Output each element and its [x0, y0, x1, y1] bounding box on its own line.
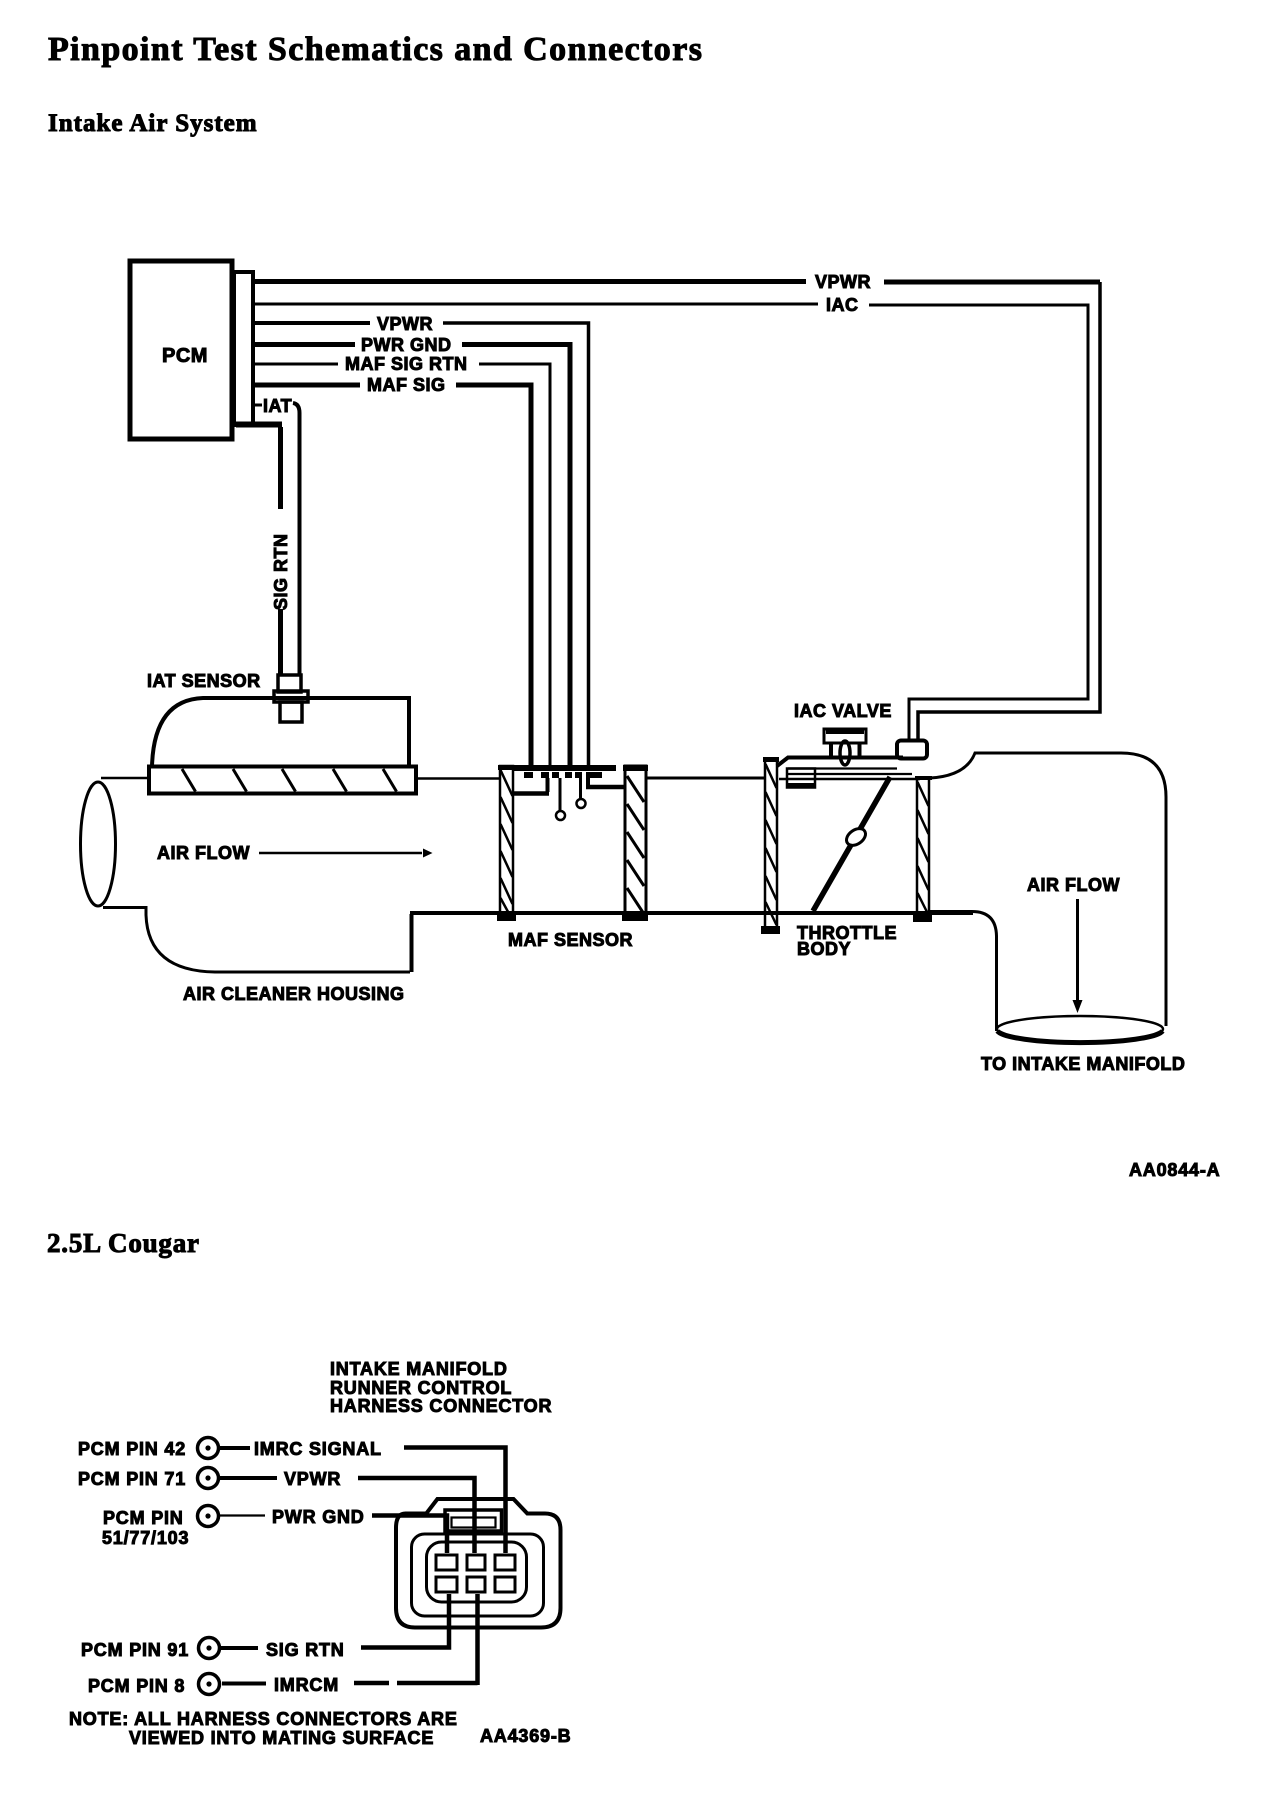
svg-text:VPWR: VPWR [284, 1469, 341, 1489]
svg-text:MAF SIG RTN: MAF SIG RTN [345, 354, 468, 374]
svg-text:TO INTAKE MANIFOLD: TO INTAKE MANIFOLD [981, 1054, 1185, 1074]
svg-text:Intake Air System: Intake Air System [48, 110, 258, 137]
svg-text:AIR CLEANER HOUSING: AIR CLEANER HOUSING [183, 984, 405, 1004]
svg-text:PCM PIN: PCM PIN [103, 1508, 184, 1528]
svg-text:SIG RTN: SIG RTN [266, 1640, 345, 1660]
svg-text:IAT SENSOR: IAT SENSOR [147, 671, 261, 691]
svg-text:INTAKE MANIFOLD: INTAKE MANIFOLD [330, 1359, 508, 1379]
svg-text:PWR GND: PWR GND [272, 1507, 365, 1527]
svg-text:IAC VALVE: IAC VALVE [794, 701, 892, 721]
svg-text:NOTE: ALL HARNESS CONNECTORS A: NOTE: ALL HARNESS CONNECTORS ARE [69, 1709, 458, 1729]
svg-text:2.5L Cougar: 2.5L Cougar [47, 1228, 200, 1258]
svg-text:PWR GND: PWR GND [361, 335, 452, 355]
svg-text:IAT: IAT [263, 396, 292, 416]
svg-text:VPWR: VPWR [815, 272, 871, 292]
svg-text:PCM PIN 71: PCM PIN 71 [78, 1469, 186, 1489]
svg-text:Pinpoint Test Schematics and C: Pinpoint Test Schematics and Connectors [48, 31, 703, 68]
svg-text:MAF SENSOR: MAF SENSOR [508, 930, 633, 950]
svg-text:AIR FLOW: AIR FLOW [1027, 875, 1120, 895]
svg-text:AIR FLOW: AIR FLOW [157, 843, 250, 863]
svg-text:IMRCM: IMRCM [274, 1675, 339, 1695]
svg-text:HARNESS CONNECTOR: HARNESS CONNECTOR [330, 1396, 552, 1416]
svg-text:MAF SIG: MAF SIG [367, 375, 446, 395]
svg-text:BODY: BODY [797, 939, 851, 959]
svg-text:AA0844-A: AA0844-A [1129, 1160, 1220, 1180]
svg-text:IMRC SIGNAL: IMRC SIGNAL [254, 1439, 382, 1459]
svg-text:SIG RTN: SIG RTN [271, 533, 291, 610]
svg-text:51/77/103: 51/77/103 [102, 1528, 189, 1548]
svg-text:PCM PIN 91: PCM PIN 91 [81, 1640, 189, 1660]
svg-text:AA4369-B: AA4369-B [480, 1726, 571, 1746]
svg-text:PCM: PCM [162, 345, 208, 367]
svg-text:RUNNER CONTROL: RUNNER CONTROL [330, 1378, 512, 1398]
svg-text:PCM PIN 42: PCM PIN 42 [78, 1439, 186, 1459]
svg-text:IAC: IAC [826, 295, 859, 315]
svg-text:VIEWED INTO MATING SURFACE: VIEWED INTO MATING SURFACE [129, 1728, 434, 1748]
svg-text:PCM PIN 8: PCM PIN 8 [88, 1676, 185, 1696]
svg-text:VPWR: VPWR [377, 314, 433, 334]
